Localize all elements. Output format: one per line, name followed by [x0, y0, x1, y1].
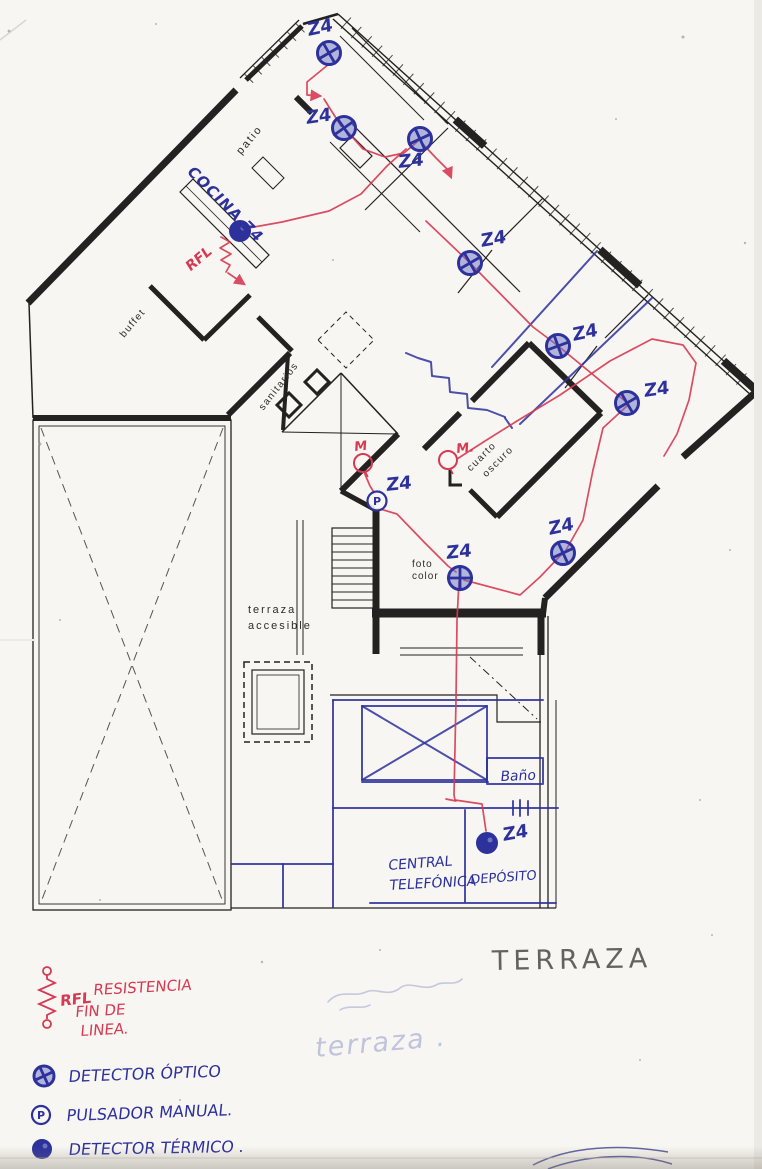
pulsador-letter: P [37, 1109, 45, 1122]
zone-label: Z4 [480, 226, 506, 252]
optical-detector-entry-top [318, 42, 341, 65]
scanned-floorplan-page: patio buffet sanitarios cuarto oscuro fo… [0, 0, 762, 1169]
pulsador-blue-wing: P [368, 492, 387, 511]
optical-detector-hall [409, 128, 432, 151]
legend-device-symbols: P [32, 1066, 54, 1159]
legend-rfl-line2: FIN DE [75, 1000, 127, 1021]
zone-label: Z4 [398, 149, 424, 173]
pulsador-letter: P [373, 495, 381, 508]
zone-label: Z4 [644, 377, 669, 402]
optical-detector-foto-color [448, 566, 471, 589]
zone-label: Z4 [502, 820, 528, 846]
thermal-circle [477, 833, 498, 854]
zone-label: Z4 [446, 540, 472, 564]
optical-detector-room-1 [459, 252, 482, 275]
legend-pulsador-symbol: P [32, 1106, 50, 1124]
floorplan-drawing: patio buffet sanitarios cuarto oscuro fo… [0, 0, 762, 1169]
legend-rfl-line3: LINEA. [80, 1019, 130, 1040]
room-label-terraza: terraza [248, 604, 296, 616]
red-pulsador-label: M [354, 439, 368, 455]
zone-label: Z4 [306, 104, 331, 129]
ink-highlight [488, 838, 493, 843]
red-pulsador-label: M. [456, 440, 475, 457]
bano-label: Baño [500, 768, 537, 785]
room-label-color: color [412, 571, 439, 582]
optical-detector-wing [552, 542, 575, 565]
optical-detector-room-2 [547, 335, 570, 358]
zone-label: Z4 [386, 472, 412, 496]
room-label-accesible: accesible [248, 620, 312, 632]
room-label-foto: foto [412, 559, 433, 570]
optical-detector-patio [333, 117, 356, 140]
legend-optical-symbol [34, 1066, 54, 1086]
terraza-title-pencil: TERRAZA [491, 943, 653, 977]
thermal-detector-deposito [477, 833, 498, 854]
optical-detector-room-3 [616, 392, 639, 415]
